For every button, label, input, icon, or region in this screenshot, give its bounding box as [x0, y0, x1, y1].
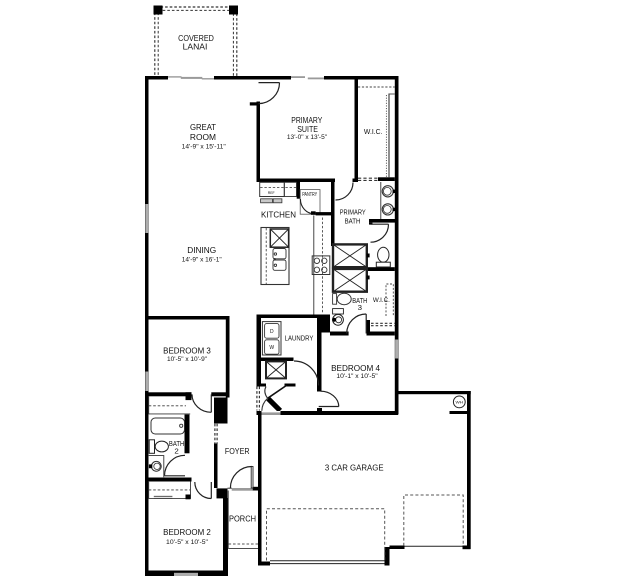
- svg-text:W: W: [269, 345, 274, 351]
- svg-text:BEDROOM 4: BEDROOM 4: [331, 363, 380, 373]
- svg-text:ROOM: ROOM: [190, 132, 216, 142]
- svg-text:W.I.C.: W.I.C.: [364, 129, 383, 136]
- svg-text:BEDROOM 2: BEDROOM 2: [163, 527, 211, 537]
- svg-text:REF: REF: [268, 190, 275, 195]
- svg-text:14'-9" x 15'-11": 14'-9" x 15'-11": [182, 143, 226, 150]
- svg-text:FOYER: FOYER: [225, 447, 250, 456]
- svg-text:3: 3: [358, 303, 362, 312]
- svg-text:KITCHEN: KITCHEN: [261, 210, 296, 220]
- svg-text:BATH: BATH: [345, 216, 361, 225]
- svg-text:SUITE: SUITE: [297, 124, 318, 134]
- svg-text:10'-5" x 10'-5": 10'-5" x 10'-5": [166, 539, 208, 546]
- svg-text:W.I.C.: W.I.C.: [373, 297, 390, 304]
- svg-text:13'-0" x 13'-5": 13'-0" x 13'-5": [287, 134, 327, 141]
- svg-text:WH: WH: [456, 400, 464, 404]
- svg-text:2: 2: [174, 446, 178, 455]
- svg-text:D: D: [270, 329, 274, 335]
- svg-text:14'-9" x 16'-1": 14'-9" x 16'-1": [182, 256, 222, 263]
- svg-text:10'-1" x 10'-5": 10'-1" x 10'-5": [336, 373, 377, 380]
- svg-text:DINING: DINING: [187, 245, 216, 255]
- svg-text:LANAI: LANAI: [183, 42, 208, 51]
- svg-text:PORCH: PORCH: [229, 514, 256, 523]
- svg-text:PANTRY: PANTRY: [302, 192, 317, 198]
- svg-text:3 CAR GARAGE: 3 CAR GARAGE: [325, 463, 384, 473]
- svg-text:BEDROOM 3: BEDROOM 3: [163, 346, 211, 356]
- svg-text:GREAT: GREAT: [190, 122, 216, 132]
- svg-text:10'-5" x 10'-9": 10'-5" x 10'-9": [167, 356, 207, 363]
- svg-text:LAUNDRY: LAUNDRY: [285, 333, 314, 342]
